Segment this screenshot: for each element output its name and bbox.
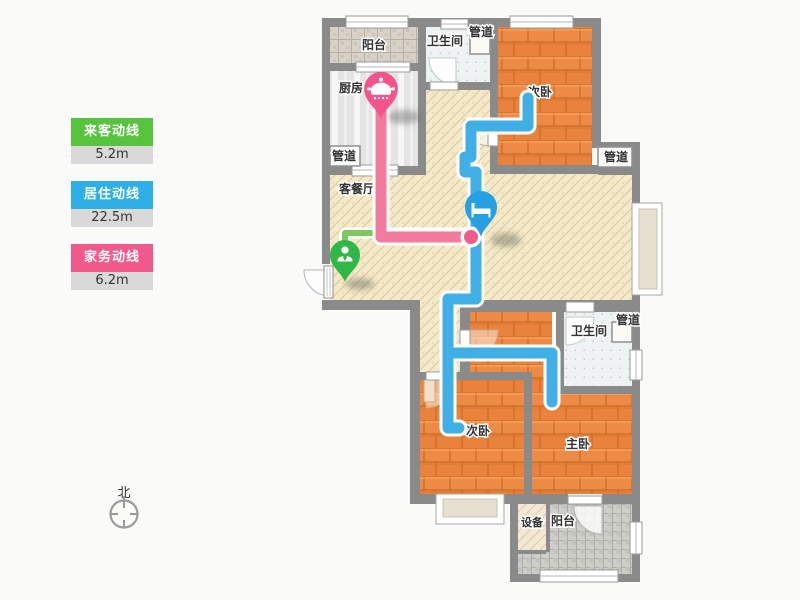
floorplan-page: 来客动线 5.2m 居住动线 22.5m 家务动线 6.2m [0, 0, 800, 600]
label-bathroom-top: 卫生间 [427, 33, 463, 48]
label-bedroom-bottom: 次卧 [466, 423, 490, 438]
label-master-bedroom: 主卧 [566, 436, 590, 451]
floorplan-drawing: 阳台 厨房 卫生间 管道 次卧 管道 管道 客餐厅 管道 卫生间 次卧 主卧 设… [0, 0, 800, 600]
compass: 北 [111, 486, 138, 528]
label-kitchen: 厨房 [339, 80, 363, 95]
route-junction-dot [464, 230, 478, 244]
label-pipe-right-top: 管道 [604, 149, 628, 164]
label-pipe-right-mid: 管道 [616, 312, 640, 327]
label-bathroom-bottom: 卫生间 [571, 323, 607, 338]
label-balcony-top: 阳台 [362, 37, 386, 52]
label-balcony-bottom: 阳台 [551, 513, 575, 528]
label-pipe-kitchen: 管道 [332, 148, 356, 163]
label-pipe-top: 管道 [469, 24, 493, 39]
label-equipment: 设备 [521, 515, 544, 529]
label-living-dining: 客餐厅 [338, 181, 375, 196]
